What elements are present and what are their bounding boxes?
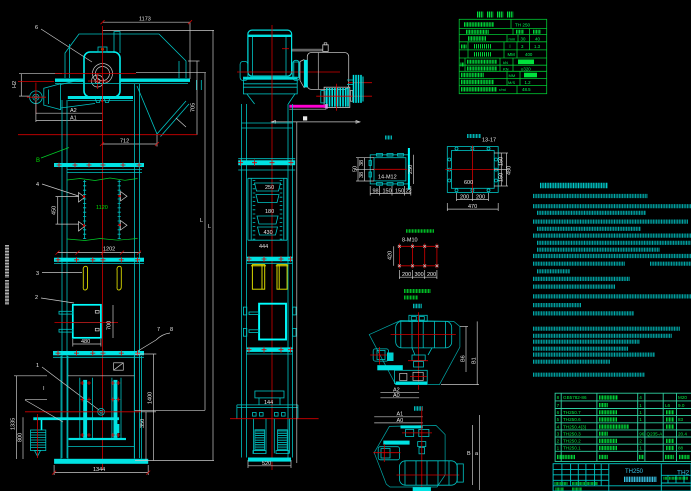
svg-text:≥320: ≥320 <box>521 66 531 71</box>
svg-text:3: 3 <box>557 431 560 436</box>
svg-text:6: 6 <box>557 410 560 415</box>
svg-text:L: L <box>208 224 211 230</box>
svg-text:98: 98 <box>373 189 379 195</box>
svg-text:5: 5 <box>557 417 560 422</box>
svg-text:20.4: 20.4 <box>678 431 687 436</box>
svg-text:150: 150 <box>499 173 505 182</box>
svg-text:7: 7 <box>157 327 160 333</box>
svg-text:4: 4 <box>557 424 560 429</box>
svg-text:1: 1 <box>639 417 642 422</box>
svg-text:TH250.7: TH250.7 <box>563 410 581 415</box>
svg-text:L: L <box>200 218 203 224</box>
svg-text:150: 150 <box>499 157 505 166</box>
svg-text:1120: 1120 <box>96 205 108 211</box>
svg-text:M20: M20 <box>678 395 687 400</box>
svg-text:1173: 1173 <box>139 17 151 23</box>
svg-text:B1: B1 <box>472 357 478 364</box>
svg-text:6: 6 <box>35 25 38 31</box>
svg-text:9.0: 9.0 <box>678 403 685 408</box>
svg-text:MM: MM <box>509 73 516 78</box>
svg-text:l: l <box>510 44 511 49</box>
svg-text:1: 1 <box>36 363 39 369</box>
svg-text:180: 180 <box>265 209 274 215</box>
svg-text:38: 38 <box>359 172 365 178</box>
svg-text:B6: B6 <box>461 355 467 362</box>
svg-text:300: 300 <box>415 272 424 278</box>
svg-text:22: 22 <box>406 189 412 195</box>
svg-text:520: 520 <box>262 461 271 467</box>
svg-text:B: B <box>467 451 471 457</box>
svg-text:420: 420 <box>388 251 394 260</box>
svg-text:4: 4 <box>639 395 642 400</box>
svg-text:TH250: TH250 <box>625 469 644 475</box>
svg-text:13-17: 13-17 <box>482 138 496 144</box>
svg-text:450: 450 <box>52 206 58 215</box>
svg-text:1202: 1202 <box>103 247 115 253</box>
svg-text:400: 400 <box>525 52 533 57</box>
svg-text:Q235-A: Q235-A <box>647 431 664 436</box>
svg-text:38: 38 <box>359 160 365 166</box>
svg-text:4: 4 <box>36 182 39 188</box>
svg-text:1400: 1400 <box>148 392 154 404</box>
svg-text:8-M10: 8-M10 <box>402 238 418 244</box>
svg-text:1: 1 <box>639 446 642 451</box>
svg-text:14-M12: 14-M12 <box>378 175 397 181</box>
svg-text:MM: MM <box>508 52 516 57</box>
svg-text:2: 2 <box>557 439 560 444</box>
svg-text:kN: kN <box>503 60 508 65</box>
svg-text:50: 50 <box>353 166 359 172</box>
svg-text:1344: 1344 <box>93 467 105 473</box>
svg-text:TH250.3: TH250.3 <box>563 431 581 436</box>
svg-text:350: 350 <box>140 419 146 428</box>
svg-text:88: 88 <box>678 446 684 451</box>
svg-text:30: 30 <box>521 36 526 41</box>
svg-text:200: 200 <box>460 195 469 201</box>
svg-text:40: 40 <box>535 36 540 41</box>
svg-text:1.3: 1.3 <box>534 44 541 49</box>
svg-text:mm: mm <box>509 36 516 41</box>
svg-text:430: 430 <box>264 230 273 236</box>
svg-text:r/mi: r/mi <box>499 87 506 92</box>
svg-text:1335: 1335 <box>11 418 17 430</box>
svg-text:H2: H2 <box>12 81 18 88</box>
svg-text:48.5: 48.5 <box>522 87 531 92</box>
svg-text:480: 480 <box>81 339 90 345</box>
svg-text:2: 2 <box>639 439 642 444</box>
svg-text:700: 700 <box>107 321 113 330</box>
svg-text:A2: A2 <box>70 108 77 114</box>
svg-text:96: 96 <box>639 431 645 436</box>
svg-text:200: 200 <box>476 195 485 201</box>
svg-text:705: 705 <box>191 103 197 112</box>
svg-text:KN: KN <box>503 66 509 71</box>
svg-text:TH250.6: TH250.6 <box>563 417 581 422</box>
svg-text:TH 250: TH 250 <box>515 22 531 27</box>
svg-text:L6: L6 <box>665 403 671 408</box>
svg-text:2: 2 <box>35 295 38 301</box>
svg-text:TH250.1: TH250.1 <box>563 446 581 451</box>
svg-text:600: 600 <box>464 180 473 186</box>
svg-text:83: 83 <box>678 417 684 422</box>
svg-text:1: 1 <box>639 403 642 408</box>
svg-text:3: 3 <box>36 271 39 277</box>
svg-text:150: 150 <box>383 189 392 195</box>
svg-text:M/S: M/S <box>508 80 515 85</box>
svg-text:8: 8 <box>557 395 560 400</box>
svg-text:470: 470 <box>468 204 477 210</box>
svg-text:450: 450 <box>507 166 513 175</box>
svg-text:250: 250 <box>408 165 414 174</box>
svg-text:1: 1 <box>639 410 642 415</box>
svg-text:1: 1 <box>557 446 560 451</box>
svg-text:150: 150 <box>395 189 404 195</box>
svg-text:200: 200 <box>427 272 436 278</box>
svg-text:GB5782-86: GB5782-86 <box>563 395 587 400</box>
svg-text:8: 8 <box>170 327 173 333</box>
svg-text:712: 712 <box>120 139 129 145</box>
svg-text:1.2: 1.2 <box>525 80 532 85</box>
svg-text:TH250.4(3): TH250.4(3) <box>563 424 587 429</box>
svg-text:TH250.2: TH250.2 <box>563 439 581 444</box>
svg-text:7: 7 <box>557 403 560 408</box>
svg-text:444: 444 <box>259 244 268 250</box>
svg-text:TH2: TH2 <box>677 470 690 477</box>
svg-text:200: 200 <box>402 272 411 278</box>
svg-text:250: 250 <box>265 185 274 191</box>
svg-text:800: 800 <box>18 433 24 442</box>
svg-text:B: B <box>36 158 40 164</box>
svg-text:A1: A1 <box>70 115 77 121</box>
